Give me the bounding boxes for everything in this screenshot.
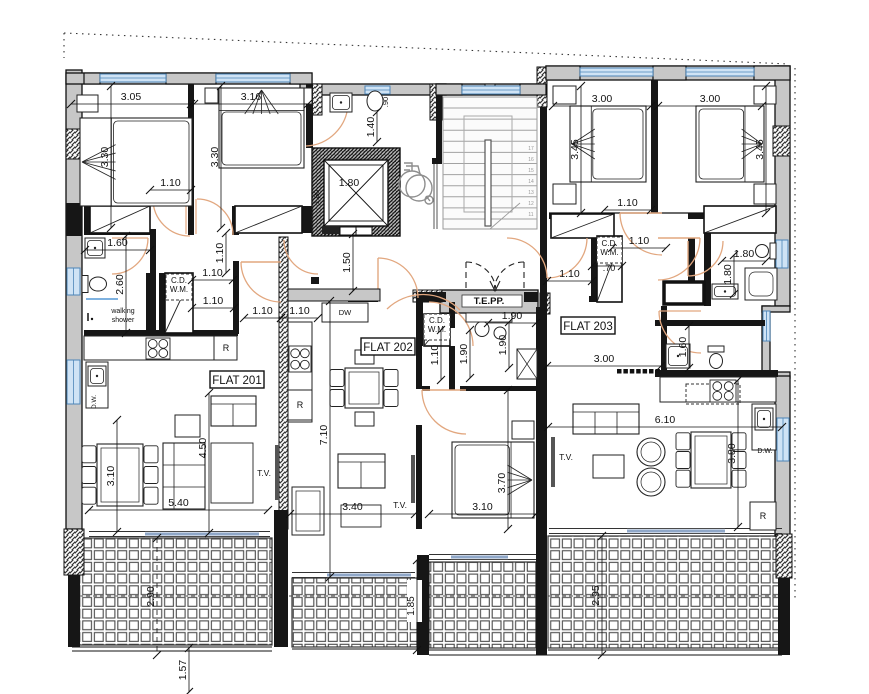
svg-text:7.10: 7.10 bbox=[318, 425, 330, 446]
svg-text:1.80: 1.80 bbox=[722, 264, 734, 285]
svg-text:R: R bbox=[223, 343, 230, 353]
svg-text:.70: .70 bbox=[603, 263, 616, 273]
svg-text:C.D.: C.D. bbox=[429, 316, 445, 325]
svg-text:3.05: 3.05 bbox=[121, 91, 142, 103]
svg-text:FLAT 202: FLAT 202 bbox=[363, 342, 412, 354]
svg-text:walking: walking bbox=[110, 308, 134, 315]
svg-text:R: R bbox=[760, 511, 767, 521]
svg-text:17: 17 bbox=[528, 146, 534, 152]
svg-text:1.85: 1.85 bbox=[406, 596, 417, 616]
svg-text:1.80: 1.80 bbox=[734, 248, 755, 260]
svg-text:3.00: 3.00 bbox=[594, 353, 615, 365]
svg-text:4.50: 4.50 bbox=[197, 438, 209, 459]
svg-text:3.70: 3.70 bbox=[496, 473, 508, 494]
svg-text:1.10: 1.10 bbox=[202, 267, 223, 279]
svg-text:3.45: 3.45 bbox=[754, 139, 766, 160]
svg-text:T.V.: T.V. bbox=[257, 468, 271, 478]
svg-text:T.V.: T.V. bbox=[393, 500, 407, 510]
svg-text:1.90: 1.90 bbox=[458, 344, 470, 365]
svg-text:1.60: 1.60 bbox=[677, 337, 689, 358]
svg-text:14: 14 bbox=[528, 179, 534, 185]
svg-text:1.10: 1.10 bbox=[203, 295, 224, 307]
svg-text:16: 16 bbox=[528, 157, 534, 163]
svg-text:1.90: 1.90 bbox=[502, 310, 523, 322]
svg-text:1.60: 1.60 bbox=[107, 237, 128, 249]
svg-text:12: 12 bbox=[528, 201, 534, 207]
svg-text:3.10: 3.10 bbox=[105, 466, 117, 487]
svg-text:DW: DW bbox=[339, 308, 352, 317]
svg-text:1.10: 1.10 bbox=[629, 235, 650, 247]
svg-text:1.10: 1.10 bbox=[559, 268, 580, 280]
svg-text:1.10: 1.10 bbox=[289, 305, 310, 317]
svg-text:shower: shower bbox=[112, 317, 135, 324]
svg-text:D.W.: D.W. bbox=[91, 395, 98, 409]
svg-text:1.40: 1.40 bbox=[365, 117, 377, 138]
svg-text:3.10: 3.10 bbox=[472, 501, 493, 513]
svg-text:W.M.: W.M. bbox=[170, 285, 188, 294]
svg-text:3.00: 3.00 bbox=[592, 93, 613, 105]
svg-text:W.M.: W.M. bbox=[600, 248, 618, 257]
svg-text:6.10: 6.10 bbox=[655, 414, 676, 426]
svg-text:1.80: 1.80 bbox=[339, 177, 360, 189]
svg-text:FLAT 201: FLAT 201 bbox=[212, 375, 261, 387]
svg-text:1.90: 1.90 bbox=[497, 335, 509, 356]
svg-text:1.10: 1.10 bbox=[160, 177, 181, 189]
svg-text:11: 11 bbox=[528, 212, 533, 218]
svg-text:1.80: 1.80 bbox=[312, 190, 321, 205]
svg-text:3.00: 3.00 bbox=[700, 93, 721, 105]
svg-text:R: R bbox=[297, 400, 304, 410]
svg-text:D.W.: D.W. bbox=[757, 448, 772, 455]
svg-text:1.10: 1.10 bbox=[214, 243, 226, 264]
svg-text:3.30: 3.30 bbox=[209, 147, 221, 168]
svg-text:2.60: 2.60 bbox=[114, 274, 126, 295]
svg-text:15: 15 bbox=[528, 168, 534, 174]
svg-text:13: 13 bbox=[528, 190, 534, 196]
svg-text:3.30: 3.30 bbox=[99, 147, 111, 168]
svg-text:1.10: 1.10 bbox=[617, 197, 638, 209]
svg-text:W.M.: W.M. bbox=[428, 325, 446, 334]
svg-text:1.10: 1.10 bbox=[429, 345, 441, 366]
svg-text:3.80: 3.80 bbox=[726, 443, 738, 464]
svg-text:3.16: 3.16 bbox=[241, 91, 262, 103]
svg-text:T.E.PP.: T.E.PP. bbox=[474, 296, 504, 307]
svg-text:3.40: 3.40 bbox=[342, 501, 363, 513]
svg-text:2.95: 2.95 bbox=[590, 585, 602, 606]
svg-text:3.45: 3.45 bbox=[569, 139, 581, 160]
svg-text:T.V.: T.V. bbox=[559, 452, 573, 462]
svg-text:5.40: 5.40 bbox=[168, 497, 189, 509]
svg-text:2.90: 2.90 bbox=[145, 586, 157, 607]
svg-text:1.10: 1.10 bbox=[252, 305, 273, 317]
svg-text:1.57: 1.57 bbox=[177, 660, 189, 681]
svg-text:C.D.: C.D. bbox=[602, 239, 618, 248]
svg-text:FLAT 203: FLAT 203 bbox=[563, 321, 612, 333]
svg-text:.90: .90 bbox=[381, 97, 390, 107]
svg-text:1.50: 1.50 bbox=[341, 252, 353, 273]
svg-text:C.D.: C.D. bbox=[171, 276, 187, 285]
